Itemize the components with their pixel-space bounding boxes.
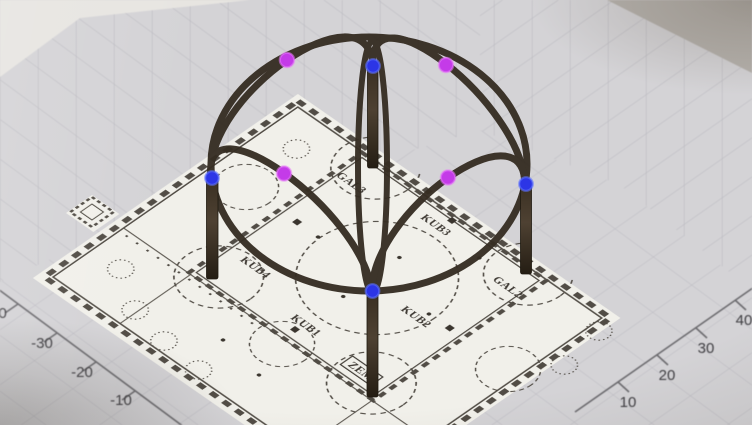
node-marker-left: [205, 171, 219, 185]
column-back: [368, 62, 379, 168]
apex-marker-front-left: [277, 166, 291, 180]
node-marker-back: [366, 59, 380, 73]
node-marker-right: [519, 177, 533, 191]
node-marker-front: [366, 284, 380, 298]
columns: [207, 62, 532, 397]
column-left: [207, 174, 219, 279]
structure-model: [0, 0, 752, 425]
apex-marker-back-left: [280, 53, 294, 67]
apex-marker-front-right: [441, 170, 455, 184]
arch-apex-markers: [277, 53, 455, 185]
column-front: [367, 289, 378, 397]
3d-plot-photo: -40 -30 -20 -10 10 20 30 40: [0, 0, 752, 425]
column-right: [521, 180, 532, 274]
apex-marker-back-right: [439, 58, 453, 72]
